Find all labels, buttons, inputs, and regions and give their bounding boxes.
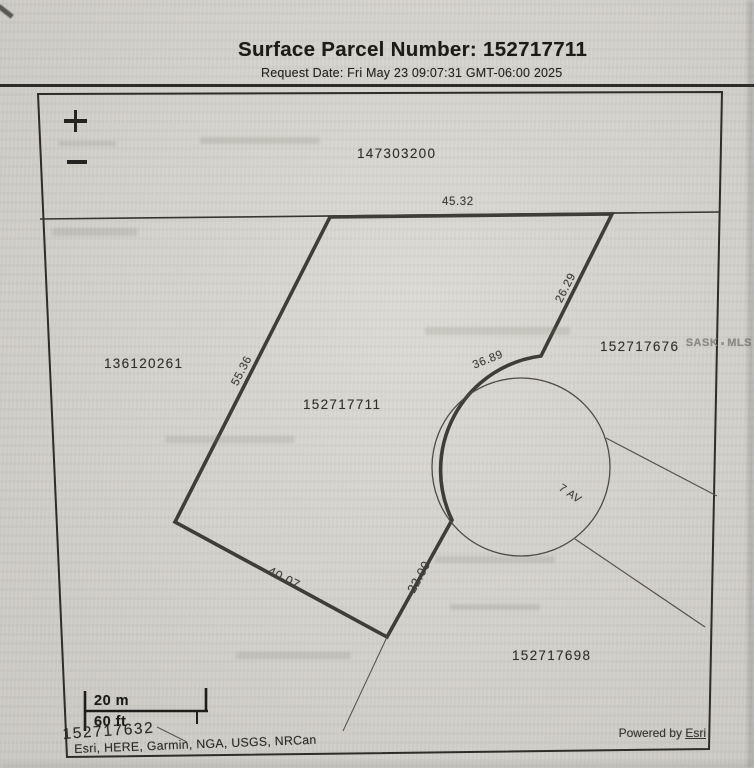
bleed-through-artifact <box>52 228 137 236</box>
scale-bar-metric-label: 20 m <box>94 693 129 709</box>
parcel-label-152717698: 152717698 <box>512 648 591 663</box>
parcel-label-152717676: 152717676 <box>600 339 679 354</box>
parcel-label-147303200: 147303200 <box>357 146 436 161</box>
powered-by-prefix: Powered by <box>619 726 682 740</box>
sask-mls-watermark: SASK MLS <box>686 337 752 349</box>
parcel-label-136120261: 136120261 <box>104 356 183 371</box>
bleed-through-artifact <box>425 327 570 335</box>
watermark-sask: SASK <box>686 337 719 349</box>
parcel-label-152717711: 152717711 <box>303 397 381 412</box>
plus-icon <box>74 110 78 132</box>
bleed-through-artifact <box>58 141 116 146</box>
map-border <box>38 92 722 757</box>
cul-de-sac-circle <box>432 378 610 556</box>
esri-link[interactable]: Esri <box>685 726 706 740</box>
bleed-through-artifact <box>165 436 295 443</box>
bleed-through-artifact <box>200 137 320 144</box>
scale-bar-imperial-label: 60 ft <box>94 714 126 730</box>
subject-parcel-boundary <box>175 214 612 637</box>
powered-by: Powered by Esri <box>619 726 706 740</box>
bleed-through-artifact <box>236 652 351 659</box>
scan-edge-shadow <box>0 764 754 768</box>
watermark-dot-icon <box>721 342 724 345</box>
scanned-parcel-map-page: Surface Parcel Number: 152717711 Request… <box>0 0 754 768</box>
bleed-through-artifact <box>435 556 555 563</box>
street-edge-line-upper <box>606 438 717 496</box>
minus-icon <box>67 160 87 164</box>
dimension-label-45-32: 45.32 <box>442 196 474 208</box>
street-edge-line-lower <box>575 539 705 627</box>
scan-edge-shadow <box>748 0 754 768</box>
map-canvas <box>0 0 754 768</box>
bleed-through-artifact <box>450 604 540 610</box>
